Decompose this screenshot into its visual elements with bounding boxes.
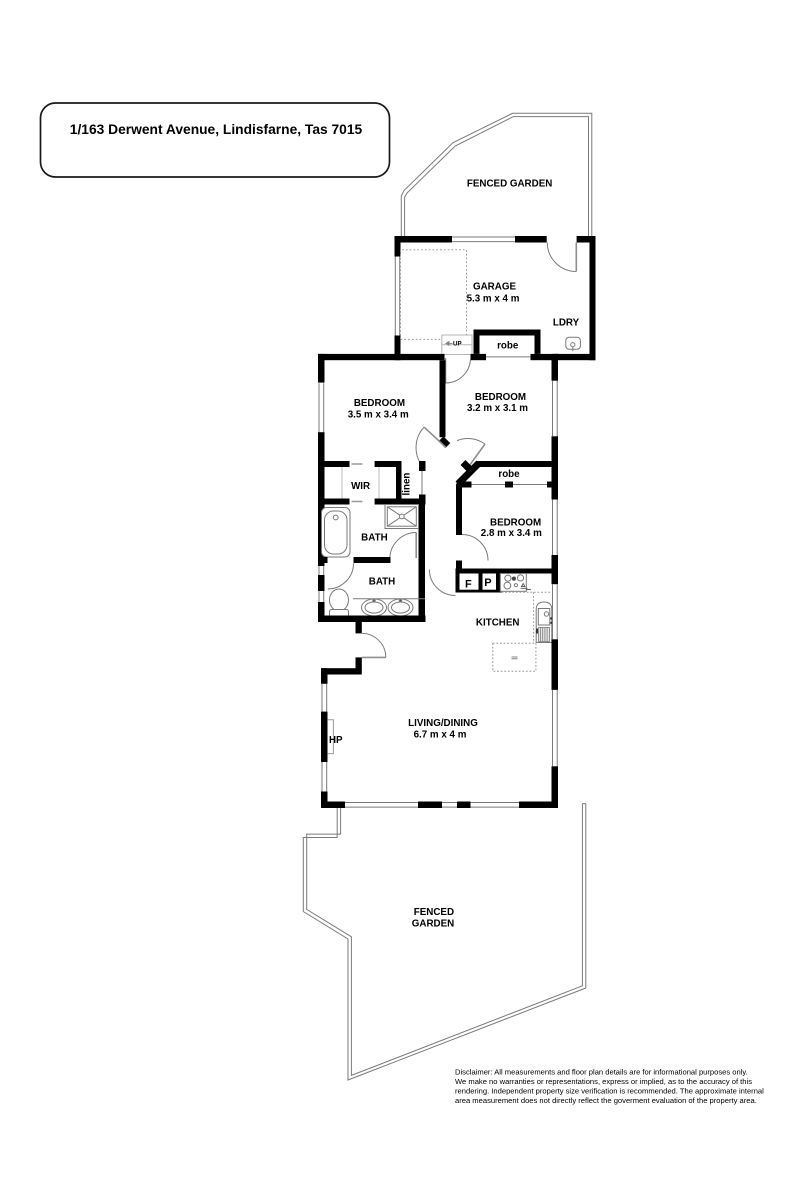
svg-text:rendering. Independent propert: rendering. Independent property size ver… xyxy=(455,1087,764,1096)
svg-text:We make no warranties or repr: We make no warranties or representations… xyxy=(455,1077,752,1086)
svg-text:Disclaimer: All measurements a: Disclaimer: All measurements and floor p… xyxy=(455,1067,748,1076)
svg-text:HP: HP xyxy=(329,735,343,746)
svg-text:FENCED GARDEN: FENCED GARDEN xyxy=(467,178,552,189)
svg-text:BEDROOM: BEDROOM xyxy=(490,517,541,528)
svg-text:LIVING/DINING: LIVING/DINING xyxy=(408,718,478,729)
svg-text:1/163 Derwent Avenue, Lindisfa: 1/163 Derwent Avenue, Lindisfarne, Tas 7… xyxy=(70,122,363,137)
svg-text:linen: linen xyxy=(401,473,412,496)
svg-text:3.2 m x 3.1 m: 3.2 m x 3.1 m xyxy=(467,403,528,414)
svg-text:F: F xyxy=(465,579,472,591)
svg-text:KITCHEN: KITCHEN xyxy=(476,618,520,629)
svg-text:GARDEN: GARDEN xyxy=(412,919,454,930)
svg-text:BEDROOM: BEDROOM xyxy=(354,398,405,409)
svg-text:robe: robe xyxy=(498,469,520,480)
svg-text:3.5 m x 3.4 m: 3.5 m x 3.4 m xyxy=(348,410,409,421)
svg-text:GARAGE: GARAGE xyxy=(473,282,516,293)
svg-text:5.3 m x 4 m: 5.3 m x 4 m xyxy=(467,294,520,305)
svg-text:FENCED: FENCED xyxy=(414,907,454,918)
svg-text:WIR: WIR xyxy=(351,481,370,492)
svg-text:BEDROOM: BEDROOM xyxy=(475,392,526,403)
svg-text:area measurement does not dire: area measurement does not directly refle… xyxy=(455,1096,757,1105)
svg-text:robe: robe xyxy=(497,341,519,352)
svg-text:BATH: BATH xyxy=(361,532,387,543)
svg-text:2.8 m x 3.4 m: 2.8 m x 3.4 m xyxy=(481,528,542,539)
svg-text:P: P xyxy=(484,577,491,589)
svg-text:UP: UP xyxy=(453,341,462,348)
svg-text:BATH: BATH xyxy=(369,576,395,587)
svg-text:6.7 m x 4 m: 6.7 m x 4 m xyxy=(414,730,467,741)
svg-text:LDRY: LDRY xyxy=(553,317,580,328)
